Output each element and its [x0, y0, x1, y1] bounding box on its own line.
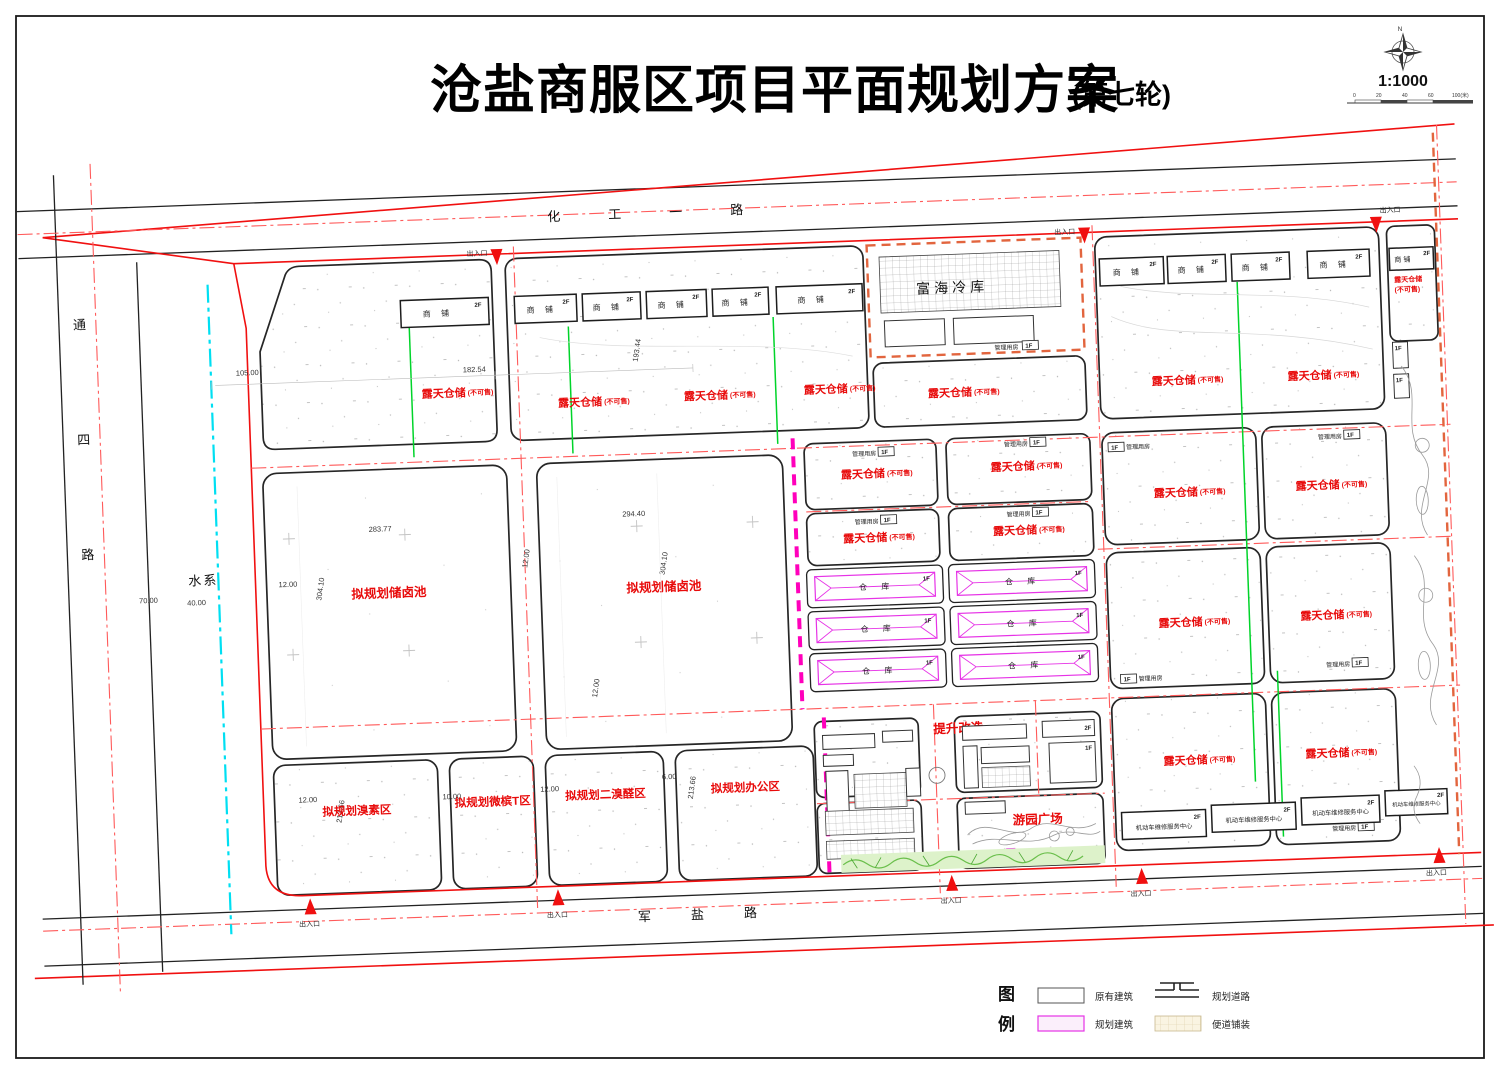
legend: 图 例 原有建筑 规划建筑 规划道路 便道铺装 [998, 983, 1251, 1034]
legend-icon-planned-road [1155, 983, 1199, 997]
scalebar-tick-0: 0 [1353, 93, 1356, 99]
svg-text:仓 库: 仓 库 [1005, 575, 1042, 586]
svg-text:出入口: 出入口 [1130, 889, 1151, 899]
parcel-brine-2 [536, 455, 792, 750]
parcel-top-2 [505, 246, 869, 441]
svg-text:2F: 2F [1084, 726, 1092, 732]
road-top-label: 化工一路 [547, 200, 791, 224]
svg-text:1F: 1F [1111, 445, 1119, 451]
legend-label-paving: 便道铺装 [1212, 1019, 1251, 1031]
plan-canvas: 化工一路 军盐路 通 四 路 水系 105.00 182.54 193.44 2… [5, 114, 1494, 997]
title-block: 沧盐商服区项目平面规划方案 (第七轮) [430, 62, 1171, 120]
legend-label-planned-road: 规划道路 [1212, 991, 1251, 1003]
svg-text:四: 四 [77, 432, 91, 447]
scale-bar: 0 20 40 60 100(米) [1347, 92, 1473, 103]
road-bottom-label: 军盐路 [638, 904, 797, 925]
svg-text:12.00: 12.00 [278, 580, 297, 590]
svg-text:出入口: 出入口 [547, 910, 568, 920]
svg-text:出入口: 出入口 [299, 919, 320, 929]
svg-text:1F: 1F [923, 576, 931, 582]
svg-text:1F: 1F [1347, 433, 1355, 439]
right-strip-landscape [1398, 365, 1445, 824]
parcel-dibromide [545, 751, 668, 885]
svg-text:1F: 1F [881, 450, 889, 456]
scalebar-tick-40: 40 [1402, 93, 1408, 99]
svg-text:仓 库: 仓 库 [860, 623, 897, 634]
scalebar-tick-20: 20 [1376, 93, 1382, 99]
svg-text:商 铺: 商 铺 [423, 308, 454, 319]
svg-text:1F: 1F [884, 518, 892, 524]
svg-text:出入口: 出入口 [466, 248, 487, 258]
water-label: 水系 [188, 572, 219, 588]
strip-small-rooms: 1F 1F [1392, 342, 1409, 399]
svg-text:2F: 2F [1194, 815, 1202, 821]
svg-text:1F: 1F [1361, 825, 1369, 831]
svg-text:商 铺: 商 铺 [1319, 259, 1350, 270]
svg-text:1F: 1F [1124, 677, 1132, 683]
site-plan-drawing: 沧盐商服区项目平面规划方案 (第七轮) N 1:1000 0 20 40 60 … [0, 0, 1500, 1074]
svg-text:2F: 2F [1437, 793, 1445, 799]
svg-text:2F: 2F [692, 295, 700, 301]
svg-text:商 铺: 商 铺 [592, 301, 623, 312]
svg-text:商 铺: 商 铺 [1113, 266, 1144, 277]
north-label: N [1398, 26, 1403, 33]
scalebar-tick-100: 100(米) [1452, 92, 1469, 99]
brine-pool-2-label: 拟规划储卤池 [626, 578, 702, 596]
scale-text: 1:1000 [1378, 73, 1428, 90]
svg-text:1F: 1F [1395, 346, 1403, 352]
svg-text:12.00: 12.00 [540, 784, 559, 794]
svg-text:2F: 2F [1211, 260, 1219, 266]
svg-text:商 铺: 商 铺 [721, 297, 752, 308]
svg-text:商 铺: 商 铺 [797, 294, 828, 305]
svg-text:2F: 2F [1283, 807, 1291, 813]
coldstore-area: 富海冷库 管理用房 1F [879, 250, 1063, 356]
legend-swatch-existing [1038, 988, 1084, 1003]
svg-text:182.54: 182.54 [463, 365, 486, 375]
svg-text:1F: 1F [924, 618, 932, 624]
parcel-weibin [449, 756, 538, 889]
svg-text:2F: 2F [474, 303, 482, 309]
brine-pool-1-label: 拟规划储卤池 [351, 584, 427, 602]
svg-text:1F: 1F [1085, 746, 1093, 752]
scalebar-tick-60: 60 [1428, 93, 1434, 99]
svg-text:294.40: 294.40 [622, 509, 645, 519]
svg-text:2F: 2F [626, 297, 634, 303]
legend-title-char-1: 图 [998, 985, 1015, 1004]
svg-text:12.00: 12.00 [298, 795, 317, 805]
svg-text:2F: 2F [562, 299, 570, 305]
svg-text:2F: 2F [754, 292, 762, 298]
svg-text:仓 库: 仓 库 [859, 581, 896, 592]
svg-text:仓 库: 仓 库 [1008, 659, 1045, 670]
svg-text:105.00: 105.00 [236, 368, 259, 378]
svg-text:1F: 1F [1076, 613, 1084, 619]
svg-text:管理用房: 管理用房 [994, 343, 1018, 352]
parcel-brine-1 [263, 465, 517, 760]
compass-star-fill [1385, 34, 1421, 70]
svg-text:仓 库: 仓 库 [862, 665, 899, 676]
legend-title-char-2: 例 [998, 1014, 1015, 1034]
svg-text:1F: 1F [1396, 378, 1404, 384]
svg-text:路: 路 [81, 547, 95, 562]
legend-label-planned-building: 规划建筑 [1095, 1019, 1134, 1031]
parcel-top-1 [257, 259, 498, 449]
road-left-label: 通 四 路 [73, 317, 95, 562]
svg-text:商 铺: 商 铺 [527, 304, 558, 315]
svg-text:2F: 2F [1149, 262, 1157, 268]
svg-text:1F: 1F [1075, 571, 1083, 577]
parcel-office [675, 746, 818, 881]
svg-text:1F: 1F [1033, 440, 1041, 446]
svg-text:1F: 1F [926, 660, 934, 666]
svg-text:商 铺: 商 铺 [657, 299, 688, 310]
svg-text:6.00: 6.00 [662, 772, 677, 782]
svg-text:1F: 1F [1035, 510, 1043, 516]
svg-text:12.00: 12.00 [520, 549, 531, 569]
compass-rose: N [1385, 26, 1421, 70]
svg-text:70.00: 70.00 [139, 596, 158, 606]
site-plan-page: 沧盐商服区项目平面规划方案 (第七轮) N 1:1000 0 20 40 60 … [0, 0, 1500, 1074]
svg-text:通: 通 [73, 317, 87, 332]
svg-text:1F: 1F [1025, 343, 1033, 349]
svg-text:283.77: 283.77 [368, 524, 391, 534]
svg-text:2F: 2F [1275, 257, 1283, 263]
svg-text:出入口: 出入口 [940, 895, 961, 905]
svg-text:出入口: 出入口 [1054, 227, 1075, 237]
svg-text:40.00: 40.00 [187, 598, 206, 608]
parcel-bromine [273, 760, 442, 896]
svg-text:商 铺: 商 铺 [1241, 262, 1272, 273]
legend-label-existing: 原有建筑 [1095, 991, 1134, 1003]
svg-text:1F: 1F [1355, 661, 1363, 667]
svg-text:仓 库: 仓 库 [1006, 617, 1043, 628]
legend-swatch-paving [1155, 1016, 1201, 1031]
svg-text:商 铺: 商 铺 [1177, 264, 1208, 275]
svg-text:2F: 2F [1423, 251, 1431, 257]
svg-text:2F: 2F [848, 289, 856, 295]
title-round: (第七轮) [1072, 79, 1171, 110]
page-title: 沧盐商服区项目平面规划方案 [430, 62, 1119, 120]
svg-text:出入口: 出入口 [1379, 205, 1400, 215]
warehouse-buildings: 仓 库1F 仓 库1F 仓 库1F 仓 库1F 仓 库1F 仓 库1F [806, 559, 1098, 691]
svg-text:2F: 2F [1355, 254, 1363, 260]
svg-text:出入口: 出入口 [1426, 868, 1447, 878]
svg-text:1F: 1F [1078, 655, 1086, 661]
legend-swatch-planned-building [1038, 1016, 1084, 1031]
coldstore-label: 富海冷库 [916, 278, 989, 297]
svg-text:2F: 2F [1367, 800, 1375, 806]
